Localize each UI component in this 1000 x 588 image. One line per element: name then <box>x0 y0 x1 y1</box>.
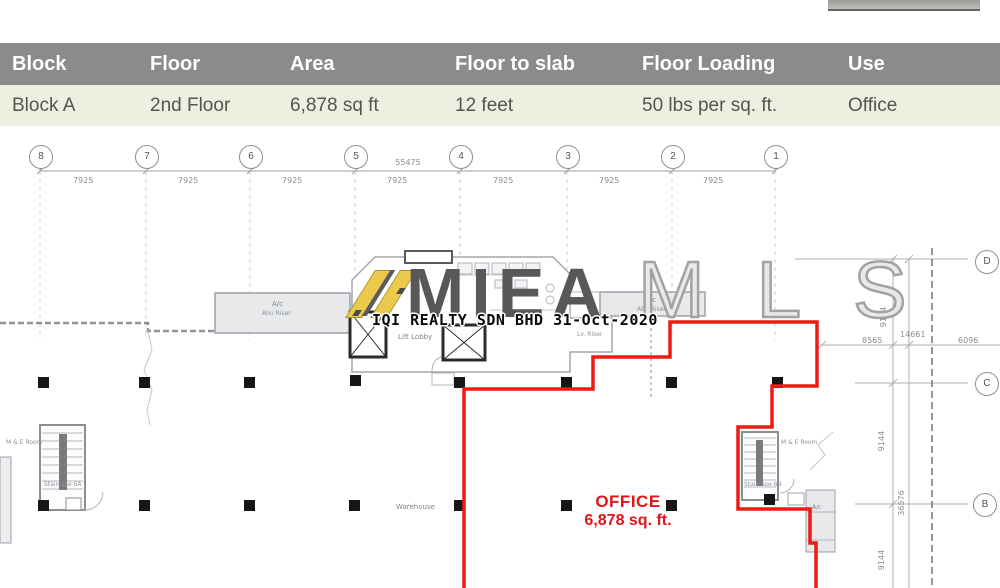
office-label-line1: OFFICE <box>558 492 698 512</box>
agency-date-stamp: IQI REALTY SDN BHD 31-Oct-2020 <box>372 311 658 329</box>
office-boundary-outline <box>0 0 1000 588</box>
office-label-line2: 6,878 sq. ft. <box>558 512 698 530</box>
office-area-label: OFFICE 6,878 sq. ft. <box>558 492 698 530</box>
floorplan-page: Block Floor Area Floor to slab Floor Loa… <box>0 0 1000 588</box>
